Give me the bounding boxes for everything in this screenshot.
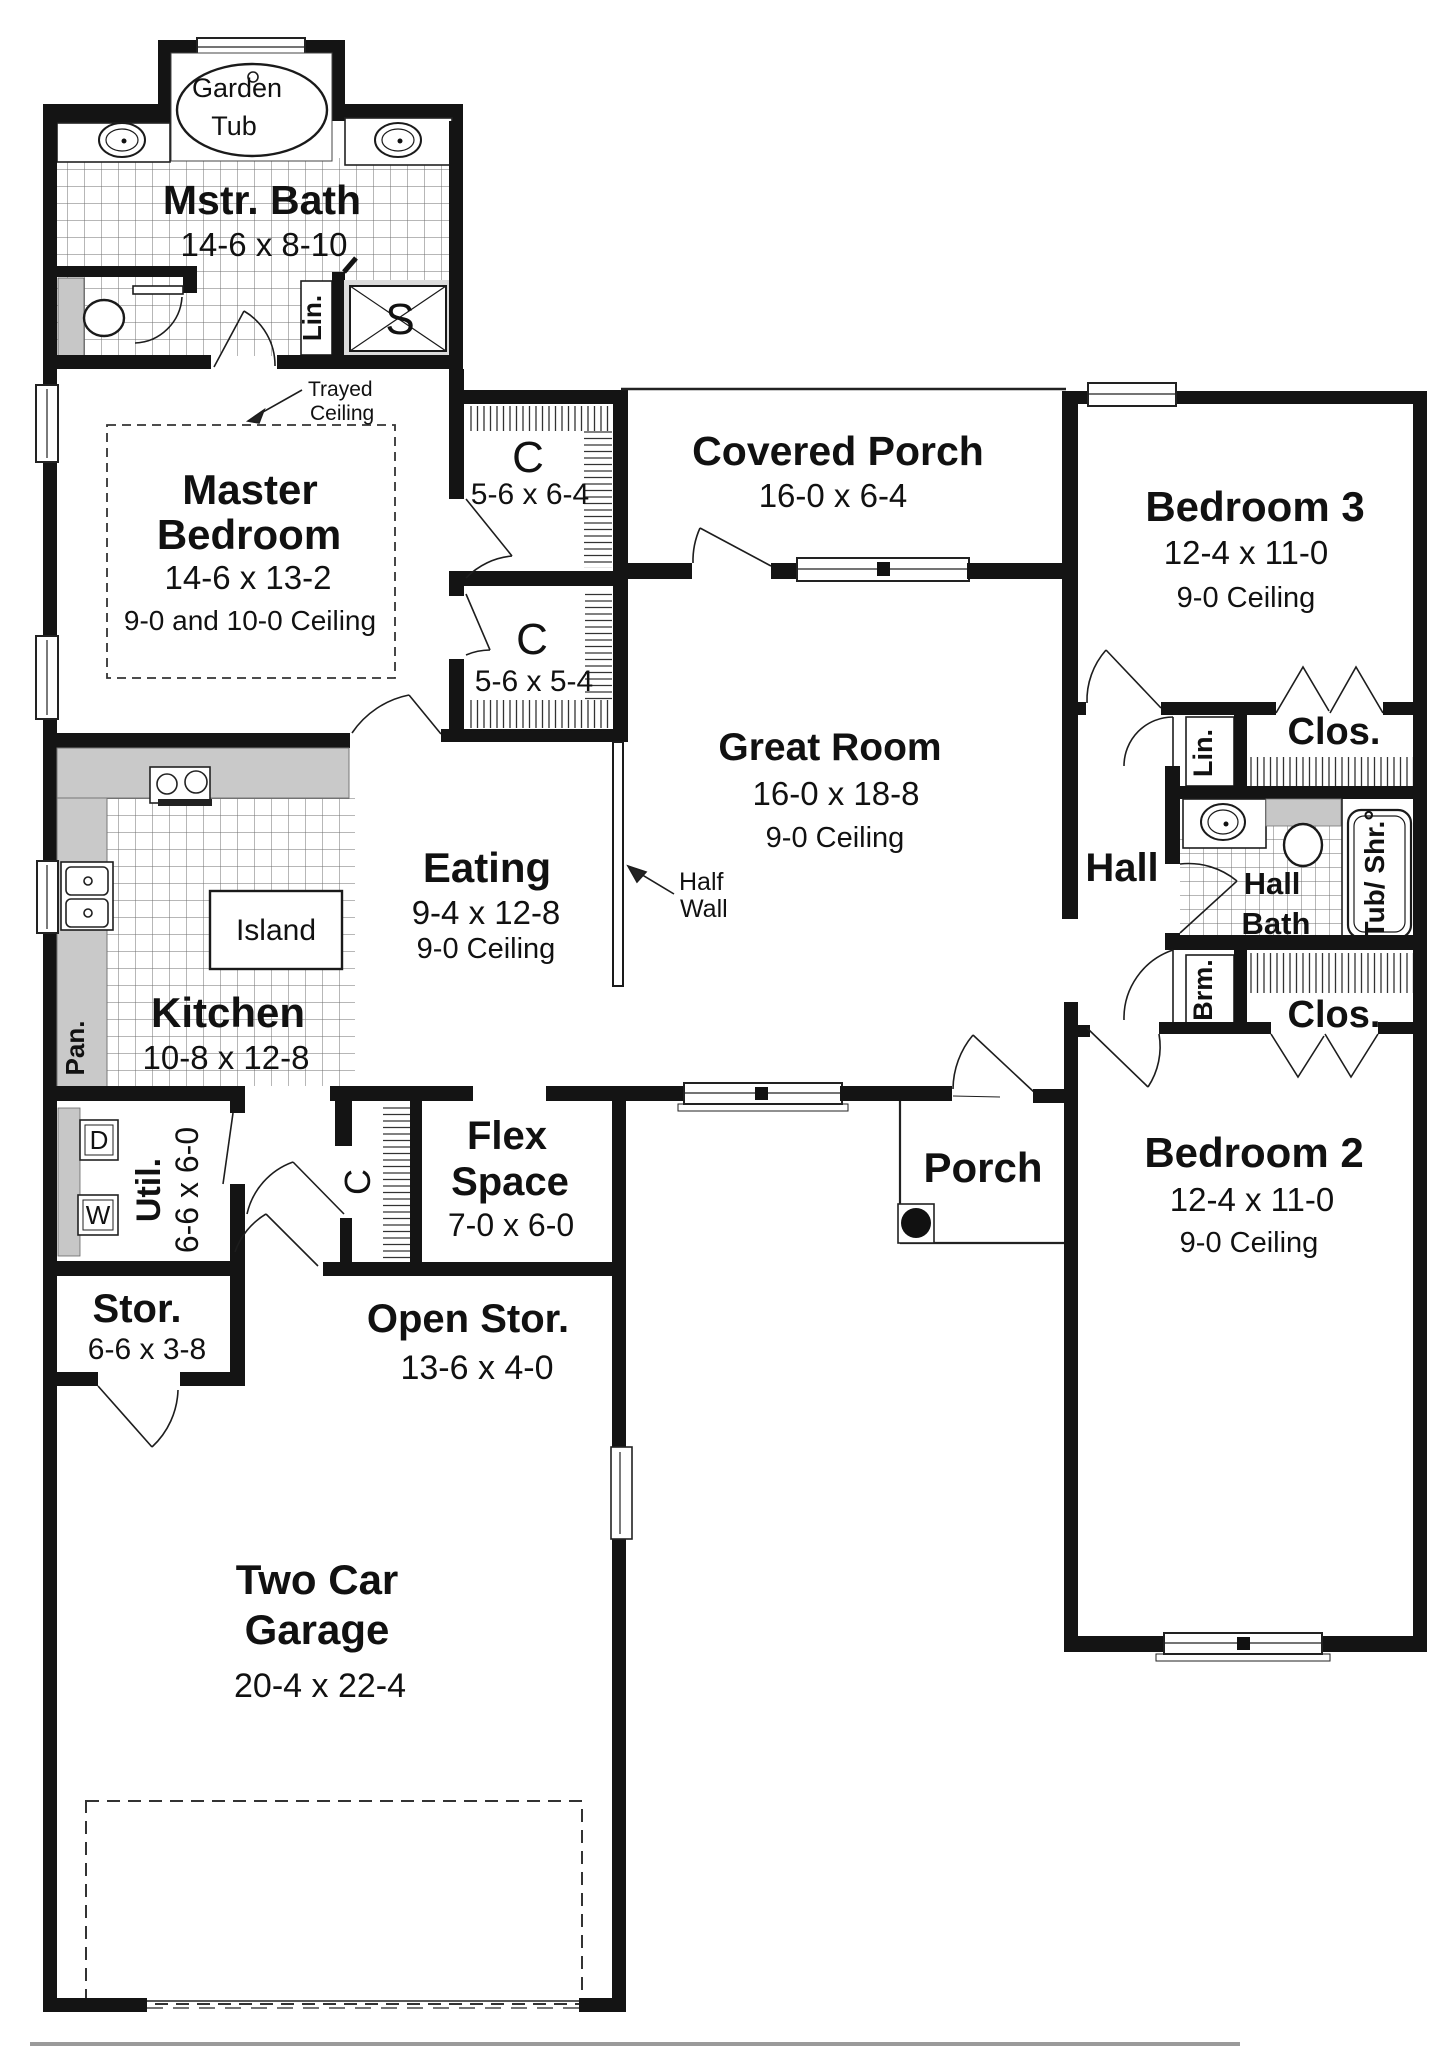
svg-text:20-4 x 22-4: 20-4 x 22-4	[234, 1667, 406, 1705]
svg-text:6-6 x 6-0: 6-6 x 6-0	[169, 1127, 205, 1253]
svg-text:16-0 x 6-4: 16-0 x 6-4	[759, 477, 908, 514]
svg-text:Eating: Eating	[423, 844, 551, 891]
svg-text:6-6 x 3-8: 6-6 x 3-8	[88, 1333, 206, 1366]
svg-text:13-6 x 4-0: 13-6 x 4-0	[400, 1349, 553, 1387]
svg-text:Island: Island	[236, 914, 316, 947]
svg-text:Open Stor.: Open Stor.	[367, 1297, 569, 1341]
svg-text:Great Room: Great Room	[718, 726, 941, 769]
svg-text:Wall: Wall	[680, 895, 728, 923]
svg-text:Garage: Garage	[245, 1606, 390, 1653]
svg-text:Pan.: Pan.	[60, 1021, 90, 1076]
svg-text:16-0 x 18-8: 16-0 x 18-8	[753, 775, 920, 812]
svg-text:Space: Space	[451, 1160, 569, 1204]
svg-text:10-8 x 12-8: 10-8 x 12-8	[143, 1039, 310, 1076]
svg-text:S: S	[385, 295, 414, 344]
svg-text:Brm.: Brm.	[1188, 959, 1218, 1021]
svg-text:Porch: Porch	[923, 1144, 1042, 1191]
svg-text:Mstr. Bath: Mstr. Bath	[163, 177, 361, 223]
svg-text:12-4 x 11-0: 12-4 x 11-0	[1170, 1181, 1334, 1218]
svg-text:9-0 Ceiling: 9-0 Ceiling	[1180, 1227, 1319, 1259]
svg-text:9-0 and 10-0 Ceiling: 9-0 and 10-0 Ceiling	[124, 605, 376, 636]
svg-text:C: C	[516, 615, 548, 664]
svg-text:Tub/ Shr.°: Tub/ Shr.°	[1359, 810, 1390, 939]
svg-text:Hall: Hall	[1085, 846, 1158, 890]
svg-text:9-0 Ceiling: 9-0 Ceiling	[417, 933, 556, 965]
svg-text:5-6 x 6-4: 5-6 x 6-4	[471, 478, 589, 511]
svg-text:Master: Master	[182, 466, 317, 513]
svg-text:Bedroom 2: Bedroom 2	[1144, 1129, 1363, 1176]
svg-text:Two Car: Two Car	[236, 1556, 399, 1603]
svg-text:C: C	[337, 1169, 378, 1195]
svg-text:9-4 x 12-8: 9-4 x 12-8	[412, 894, 561, 931]
svg-text:Lin.: Lin.	[1188, 729, 1218, 777]
svg-text:Clos.: Clos.	[1288, 994, 1381, 1036]
svg-text:Bedroom 3: Bedroom 3	[1145, 483, 1364, 530]
svg-text:Flex: Flex	[467, 1114, 547, 1158]
svg-text:D: D	[90, 1125, 109, 1155]
svg-text:W: W	[86, 1200, 111, 1230]
svg-text:9-0 Ceiling: 9-0 Ceiling	[1177, 582, 1316, 614]
svg-text:Util.: Util.	[130, 1158, 168, 1222]
svg-text:Kitchen: Kitchen	[151, 989, 305, 1036]
svg-text:Hall: Hall	[1244, 866, 1301, 901]
svg-text:12-4 x 11-0: 12-4 x 11-0	[1164, 534, 1328, 571]
svg-text:Clos.: Clos.	[1288, 711, 1381, 753]
svg-text:C: C	[512, 433, 544, 482]
svg-text:Trayed: Trayed	[308, 378, 373, 401]
svg-text:9-0 Ceiling: 9-0 Ceiling	[766, 822, 905, 854]
svg-text:7-0 x 6-0: 7-0 x 6-0	[448, 1207, 574, 1243]
svg-text:Stor.: Stor.	[93, 1287, 182, 1331]
svg-text:Garden: Garden	[192, 73, 282, 103]
svg-text:Ceiling: Ceiling	[310, 402, 374, 425]
svg-text:5-6 x 5-4: 5-6 x 5-4	[475, 665, 593, 698]
svg-text:14-6 x 8-10: 14-6 x 8-10	[181, 226, 348, 263]
svg-text:Covered Porch: Covered Porch	[692, 428, 984, 474]
svg-text:14-6 x 13-2: 14-6 x 13-2	[165, 559, 332, 596]
svg-text:Tub: Tub	[211, 111, 257, 141]
svg-text:Half: Half	[679, 868, 724, 896]
svg-text:Bedroom: Bedroom	[157, 511, 341, 558]
svg-text:Lin.: Lin.	[297, 295, 327, 341]
